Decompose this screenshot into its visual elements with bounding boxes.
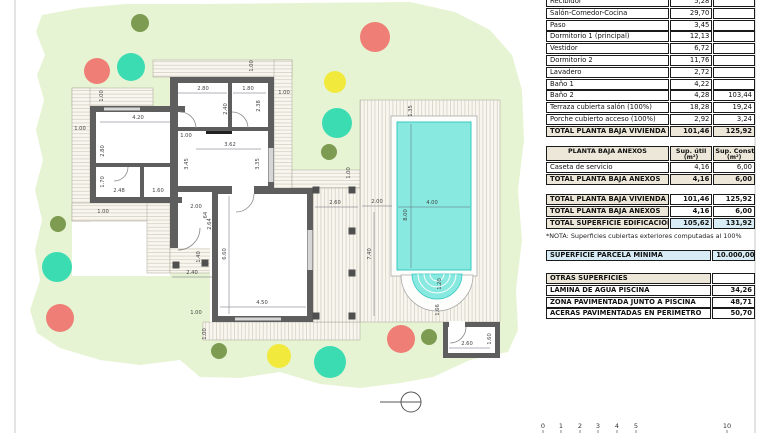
- area-label: PLANTA BAJA ANEXOS: [546, 146, 669, 161]
- area-label: SUPERFICIE PARCELA MÍNIMA: [546, 250, 711, 261]
- area-value: 125,92: [713, 126, 755, 137]
- table-row: ZONA PAVIMENTADA JUNTO A PISCINA48,71: [546, 297, 755, 308]
- dimension-text: 1.00: [346, 167, 352, 179]
- area-label: Salón-Comedor-Cocina: [546, 8, 669, 19]
- dimension-text: 2.40: [223, 103, 229, 115]
- plan-sheet: 1.001.004.202.801.702.481.601.002.801.80…: [0, 0, 770, 433]
- tree-olive: [321, 144, 337, 160]
- table-row: PLANTA BAJA ANEXOSSup. útil(m²)Sup. Cons…: [546, 146, 755, 161]
- dimension-text: 4.50: [256, 300, 268, 306]
- dimension-text: 1.00: [74, 126, 86, 132]
- area-value: 48,71: [712, 297, 755, 308]
- tree-olive: [421, 329, 437, 345]
- tree-teal: [314, 346, 346, 378]
- area-label: Caseta de servicio: [546, 162, 669, 173]
- area-value: [713, 67, 755, 78]
- dimension-text: 1.35: [408, 105, 414, 117]
- area-value: 4,22: [670, 79, 713, 90]
- dimension-text: 7.40: [367, 248, 373, 260]
- tree-olive: [211, 343, 227, 359]
- table-row: TOTAL SUPERFICIE EDIFICACIÓN105,62131,92: [546, 218, 755, 229]
- table-row: Paso3,45: [546, 20, 755, 31]
- pool-water: [397, 122, 471, 270]
- table-row: SUPERFICIE PARCELA MÍNIMA10.000,00: [546, 250, 755, 261]
- area-value: 6,00: [713, 206, 755, 217]
- area-value: [713, 0, 755, 7]
- table-row: Lavadero2,72: [546, 67, 755, 78]
- area-value: 125,92: [713, 194, 755, 205]
- table-row: Baño 24,28103,44: [546, 90, 755, 101]
- area-value: 18,28: [670, 102, 713, 113]
- dimension-text: 1.60: [487, 333, 493, 345]
- area-label: LÁMINA DE AGUA PISCINA: [546, 285, 711, 296]
- dimension-text: 2.38: [256, 100, 262, 112]
- area-value: 101,46: [670, 126, 713, 137]
- dimension-text: 1.00: [278, 90, 290, 96]
- table-row: Baño 14,22: [546, 79, 755, 90]
- dimension-text: 1.60: [152, 188, 164, 194]
- tree-yellow: [267, 344, 291, 368]
- dimension-text: 8.00: [403, 209, 409, 221]
- area-value: Sup. Const.(m²): [713, 146, 755, 161]
- table-row: LÁMINA DE AGUA PISCINA34,26: [546, 285, 755, 296]
- area-value: 101,46: [670, 194, 713, 205]
- dimension-text: 2.80: [197, 86, 209, 92]
- tree-teal: [117, 53, 145, 81]
- area-label: TOTAL SUPERFICIE EDIFICACIÓN: [546, 218, 669, 229]
- table-row: Porche cubierto acceso (100%)2,923,24: [546, 114, 755, 125]
- dimension-text: 2.00: [190, 204, 202, 210]
- dimension-text: 2.48: [113, 188, 125, 194]
- area-label: Dormitorio 2: [546, 55, 669, 66]
- area-value: 6,72: [670, 43, 713, 54]
- column: [313, 187, 320, 194]
- area-value: 12,13: [670, 31, 713, 42]
- table-row: TOTAL PLANTA BAJA VIVIENDA101,46125,92: [546, 194, 755, 205]
- dimension-text: 2.40: [186, 270, 198, 276]
- dimension-text: 3.35: [255, 158, 261, 170]
- area-value: 105,62: [670, 218, 713, 229]
- dimension-text: 1.00: [97, 209, 109, 215]
- area-value: 19,24: [713, 102, 755, 113]
- dimension-text: 4.20: [132, 115, 144, 121]
- table-row: Dormitorio 211,76: [546, 55, 755, 66]
- table-otras-superficies: OTRAS SUPERFICIESLÁMINA DE AGUA PISCINA3…: [546, 273, 755, 320]
- area-label: TOTAL PLANTA BAJA VIVIENDA: [546, 194, 669, 205]
- dimension-text: 1.80: [242, 86, 254, 92]
- tree-red: [360, 22, 390, 52]
- area-value: 2,92: [670, 114, 713, 125]
- area-value: 34,26: [712, 285, 755, 296]
- tree-teal: [42, 252, 72, 282]
- dimension-text: 1.00: [190, 310, 202, 316]
- kitchen-counter: [206, 131, 232, 134]
- area-label: OTRAS SUPERFICIES: [546, 273, 711, 284]
- area-label: Dormitorio 1 (principal): [546, 31, 669, 42]
- area-value: 131,92: [713, 218, 755, 229]
- column: [349, 270, 356, 277]
- area-value: [713, 20, 755, 31]
- area-label: Lavadero: [546, 67, 669, 78]
- dimension-text: 4.00: [426, 200, 438, 206]
- dimension-text: 3.45: [184, 158, 190, 170]
- area-value: [713, 8, 755, 19]
- dimension-text: 1.66: [435, 304, 441, 316]
- area-value: 11,76: [670, 55, 713, 66]
- tree-red: [387, 325, 415, 353]
- table-row: Caseta de servicio4,166,00: [546, 162, 755, 173]
- tree-red: [84, 58, 110, 84]
- area-label: ZONA PAVIMENTADA JUNTO A PISCINA: [546, 297, 711, 308]
- table-row: TOTAL PLANTA BAJA ANEXOS4,166,00: [546, 174, 755, 185]
- area-value: 4,28: [670, 90, 713, 101]
- covered-terrace: [313, 188, 360, 322]
- dimension-text: 3.62: [224, 142, 236, 148]
- note-text: *NOTA: Superficies cubiertas exteriores …: [546, 232, 755, 240]
- area-label: TOTAL PLANTA BAJA VIVIENDA: [546, 126, 669, 137]
- dimension-text: 2.64: [207, 218, 213, 230]
- dimension-text: 6.60: [222, 248, 228, 260]
- tree-teal: [322, 108, 352, 138]
- area-label: Vestidor: [546, 43, 669, 54]
- area-label: ACERAS PAVIMENTADAS EN PERÍMETRO: [546, 308, 711, 319]
- area-label: Paso: [546, 20, 669, 31]
- table-planta-baja-vivienda: Recibidor5,28Salón-Comedor-Cocina29,70Pa…: [546, 0, 755, 138]
- tree-olive: [131, 14, 149, 32]
- table-row: Salón-Comedor-Cocina29,70: [546, 8, 755, 19]
- area-value: 6,00: [713, 174, 755, 185]
- area-value: 3,45: [670, 20, 713, 31]
- area-value: [713, 55, 755, 66]
- dimension-text: 1.20: [437, 278, 443, 290]
- area-label: Recibidor: [546, 0, 669, 7]
- table-row: Recibidor5,28: [546, 0, 755, 7]
- column: [173, 262, 180, 269]
- area-value: 5,28: [670, 0, 713, 7]
- table-row: TOTAL PLANTA BAJA ANEXOS4,166,00: [546, 206, 755, 217]
- area-label: Baño 2: [546, 90, 669, 101]
- area-value: 4,16: [670, 162, 713, 173]
- tree-olive: [50, 216, 66, 232]
- dimension-text: 2.00: [371, 199, 383, 205]
- dimension-text: 2.80: [100, 145, 106, 157]
- table-row: OTRAS SUPERFICIES: [546, 273, 755, 284]
- area-value: [712, 273, 755, 284]
- area-value: 4,16: [670, 206, 713, 217]
- dimension-text: 1.00: [249, 60, 255, 72]
- area-value: [713, 79, 755, 90]
- table-row: Dormitorio 1 (principal)12,13: [546, 31, 755, 42]
- scale-label: 0: [541, 422, 545, 430]
- table-totals-summary: TOTAL PLANTA BAJA VIVIENDA101,46125,92TO…: [546, 194, 755, 229]
- dimension-text: 1.00: [180, 133, 192, 139]
- dimension-text: 2.60: [461, 341, 473, 347]
- table-row: TOTAL PLANTA BAJA VIVIENDA101,46125,92: [546, 126, 755, 137]
- table-row: ACERAS PAVIMENTADAS EN PERÍMETRO50,70: [546, 308, 755, 319]
- orientation-marker: [380, 392, 421, 412]
- table-row: Terraza cubierta salón (100%)18,2819,24: [546, 102, 755, 113]
- tree-red: [46, 304, 74, 332]
- area-table: Recibidor5,28Salón-Comedor-Cocina29,70Pa…: [546, 0, 755, 433]
- area-value: [713, 43, 755, 54]
- area-value: 6,00: [713, 162, 755, 173]
- area-value: 3,24: [713, 114, 755, 125]
- area-value: 103,44: [713, 90, 755, 101]
- tree-yellow: [324, 71, 346, 93]
- area-label: Baño 1: [546, 79, 669, 90]
- area-value: 4,16: [670, 174, 713, 185]
- dimension-text: 1.40: [196, 251, 202, 263]
- dimension-text: 1.00: [202, 328, 208, 340]
- column: [313, 313, 320, 320]
- column: [349, 313, 356, 320]
- column: [349, 228, 356, 235]
- dimension-text: 1.70: [100, 176, 106, 188]
- column: [349, 187, 356, 194]
- column: [202, 260, 209, 267]
- area-value: 2,72: [670, 67, 713, 78]
- area-value: 29,70: [670, 8, 713, 19]
- area-label: TOTAL PLANTA BAJA ANEXOS: [546, 174, 669, 185]
- area-label: Porche cubierto acceso (100%): [546, 114, 669, 125]
- table-row: Vestidor6,72: [546, 43, 755, 54]
- table-planta-baja-anexos: PLANTA BAJA ANEXOSSup. útil(m²)Sup. Cons…: [546, 146, 755, 185]
- area-value: 50,70: [712, 308, 755, 319]
- dimension-text: 1.00: [99, 90, 105, 102]
- table-parcela-minima: SUPERFICIE PARCELA MÍNIMA10.000,00: [546, 250, 755, 262]
- area-label: TOTAL PLANTA BAJA ANEXOS: [546, 206, 669, 217]
- area-value: Sup. útil(m²): [670, 146, 713, 161]
- dimension-text: 2.60: [329, 200, 341, 206]
- area-label: Terraza cubierta salón (100%): [546, 102, 669, 113]
- area-value: 10.000,00: [712, 250, 755, 261]
- area-value: [713, 31, 755, 42]
